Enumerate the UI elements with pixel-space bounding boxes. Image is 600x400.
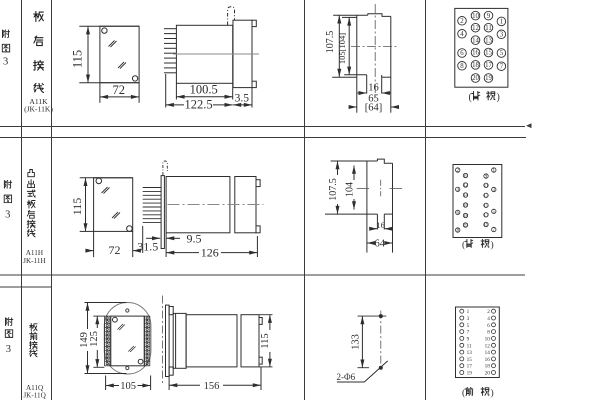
svg-text:3: 3	[467, 316, 470, 322]
svg-text:3: 3	[3, 57, 8, 68]
svg-text:19: 19	[467, 371, 473, 377]
svg-text:14: 14	[463, 194, 469, 199]
svg-text:JK-11Q: JK-11Q	[23, 391, 46, 399]
svg-text:156: 156	[204, 381, 220, 392]
svg-text:17: 17	[467, 364, 473, 370]
svg-text:6: 6	[487, 323, 490, 329]
svg-text:12: 12	[485, 343, 491, 349]
svg-text:15: 15	[467, 357, 473, 363]
svg-text:14: 14	[485, 350, 491, 356]
svg-text:105[104]: 105[104]	[337, 33, 347, 64]
svg-text:JK-11H: JK-11H	[23, 257, 46, 265]
svg-text:3.5: 3.5	[235, 93, 250, 105]
svg-text:125: 125	[89, 331, 100, 347]
svg-text:): )	[491, 240, 494, 251]
svg-text:1: 1	[500, 19, 503, 26]
svg-text:100.5: 100.5	[190, 83, 218, 97]
svg-text:1: 1	[467, 309, 470, 315]
svg-text:13: 13	[484, 194, 490, 199]
svg-text:12: 12	[472, 25, 479, 32]
svg-text:): )	[491, 388, 494, 399]
svg-text:5: 5	[500, 50, 504, 57]
svg-text:16: 16	[485, 357, 491, 363]
svg-text:2: 2	[487, 309, 490, 315]
svg-text:(: (	[462, 388, 465, 399]
svg-text:15: 15	[484, 204, 490, 209]
svg-text:7: 7	[500, 63, 504, 70]
svg-text:31.5: 31.5	[137, 240, 158, 254]
svg-text:3: 3	[493, 188, 496, 193]
svg-text:8: 8	[460, 63, 464, 70]
svg-text:10: 10	[485, 336, 491, 342]
svg-text:2-Φ6: 2-Φ6	[337, 372, 356, 382]
svg-text:15: 15	[485, 50, 492, 57]
svg-text:7: 7	[493, 228, 496, 233]
svg-text:18: 18	[463, 214, 469, 219]
svg-text:3: 3	[5, 210, 10, 221]
svg-text:4: 4	[456, 188, 459, 193]
svg-text:64: 64	[375, 238, 386, 249]
svg-text:11: 11	[485, 25, 492, 32]
svg-text:115: 115	[70, 198, 84, 216]
svg-text:122.5: 122.5	[184, 98, 212, 112]
svg-text:4: 4	[487, 316, 490, 322]
svg-text:9: 9	[467, 336, 470, 342]
svg-text:10: 10	[472, 13, 479, 20]
svg-text:8: 8	[456, 229, 459, 234]
svg-text:133: 133	[351, 334, 362, 350]
svg-text:16: 16	[463, 204, 469, 209]
svg-text:17: 17	[484, 213, 490, 218]
svg-text:14: 14	[472, 37, 479, 44]
svg-text:20: 20	[472, 75, 479, 82]
svg-text:[64]: [64]	[365, 103, 383, 114]
svg-text:107.5: 107.5	[325, 31, 336, 54]
svg-text:11: 11	[484, 184, 489, 189]
svg-text:19: 19	[485, 75, 492, 82]
svg-text:2: 2	[460, 18, 464, 25]
svg-text:16: 16	[368, 83, 379, 94]
svg-text:9.5: 9.5	[187, 231, 202, 245]
svg-text:12: 12	[463, 184, 469, 189]
svg-text:16: 16	[376, 220, 385, 230]
svg-text:115: 115	[260, 333, 271, 348]
svg-text:3: 3	[6, 344, 11, 355]
svg-text:72: 72	[109, 243, 121, 257]
svg-text:7: 7	[467, 330, 470, 336]
svg-text:4: 4	[460, 31, 464, 38]
svg-text:6: 6	[460, 50, 464, 57]
svg-text:20: 20	[485, 371, 491, 377]
svg-text:2: 2	[456, 169, 459, 174]
svg-text:10: 10	[463, 174, 469, 179]
svg-text:13: 13	[467, 350, 473, 356]
svg-text:126: 126	[201, 246, 219, 260]
svg-text:(JK-11K): (JK-11K)	[24, 105, 53, 114]
svg-text:): )	[497, 92, 500, 103]
svg-text:11: 11	[467, 343, 472, 349]
svg-text:17: 17	[485, 62, 492, 69]
svg-text:(: (	[462, 240, 465, 251]
svg-text:3: 3	[500, 32, 504, 39]
svg-text:1: 1	[493, 169, 496, 174]
svg-text:9: 9	[485, 175, 488, 180]
svg-text:105: 105	[120, 381, 136, 392]
svg-text:18: 18	[485, 364, 491, 370]
svg-text:A11H: A11H	[26, 249, 43, 257]
svg-text:5: 5	[493, 210, 496, 215]
svg-text:9: 9	[487, 13, 491, 20]
svg-text:16: 16	[472, 50, 479, 57]
svg-text:8: 8	[487, 330, 490, 336]
svg-text:5: 5	[467, 323, 470, 329]
svg-text:107.5: 107.5	[328, 178, 339, 201]
svg-text:19: 19	[484, 223, 490, 228]
svg-text:6: 6	[456, 211, 459, 216]
svg-text:18: 18	[472, 62, 479, 69]
svg-text:13: 13	[485, 37, 492, 44]
svg-text:104: 104	[344, 182, 355, 197]
svg-text:72: 72	[113, 83, 126, 97]
svg-text:20: 20	[463, 224, 469, 229]
svg-text:115: 115	[71, 50, 85, 68]
